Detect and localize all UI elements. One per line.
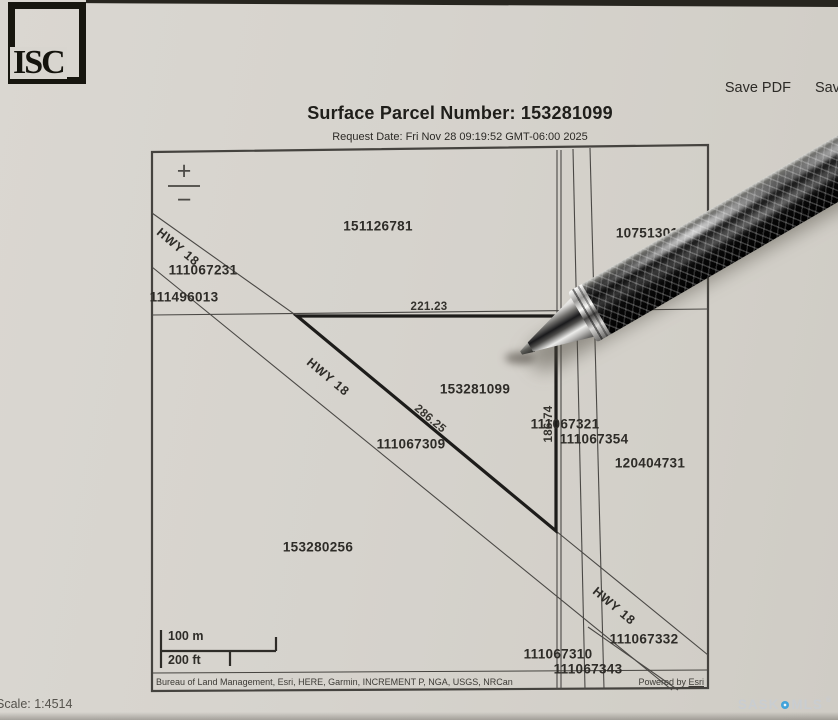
attribution-divider xyxy=(152,670,708,673)
parcel-label: 111067310 xyxy=(524,647,593,662)
map-zoom-control: + − xyxy=(167,160,201,218)
powered-by: Powered by Esri xyxy=(638,677,707,687)
parcel-label: 111067321 xyxy=(531,417,600,432)
map-canvas[interactable] xyxy=(0,0,838,720)
parcel-label: 111067332 xyxy=(610,632,679,647)
map-attribution-bar: Bureau of Land Management, Esri, HERE, G… xyxy=(153,674,707,689)
parcel-label: 153280256 xyxy=(283,540,353,555)
parcel-label: 151126781 xyxy=(343,219,413,234)
zoom-out-button[interactable]: − xyxy=(167,189,201,211)
zoom-in-button[interactable]: + xyxy=(167,160,201,182)
parcel-label: 111496013 xyxy=(150,290,219,305)
powered-by-prefix: Powered by xyxy=(638,677,688,687)
parcel-label: 111067231 xyxy=(169,263,238,278)
parcel-label: 111067309 xyxy=(377,437,446,452)
parcel-label: 120404731 xyxy=(615,456,685,471)
scale-bar-metric-label: 100 m xyxy=(168,629,203,643)
parcel-label: 111067354 xyxy=(560,432,629,447)
powered-by-brand-link[interactable]: Esri xyxy=(689,677,705,687)
dim-label: 221.23 xyxy=(411,301,448,313)
scale-bar-imperial-label: 200 ft xyxy=(168,653,201,667)
parcel-label: 153281099 xyxy=(440,382,510,397)
attribution-sources: Bureau of Land Management, Esri, HERE, G… xyxy=(153,677,513,687)
